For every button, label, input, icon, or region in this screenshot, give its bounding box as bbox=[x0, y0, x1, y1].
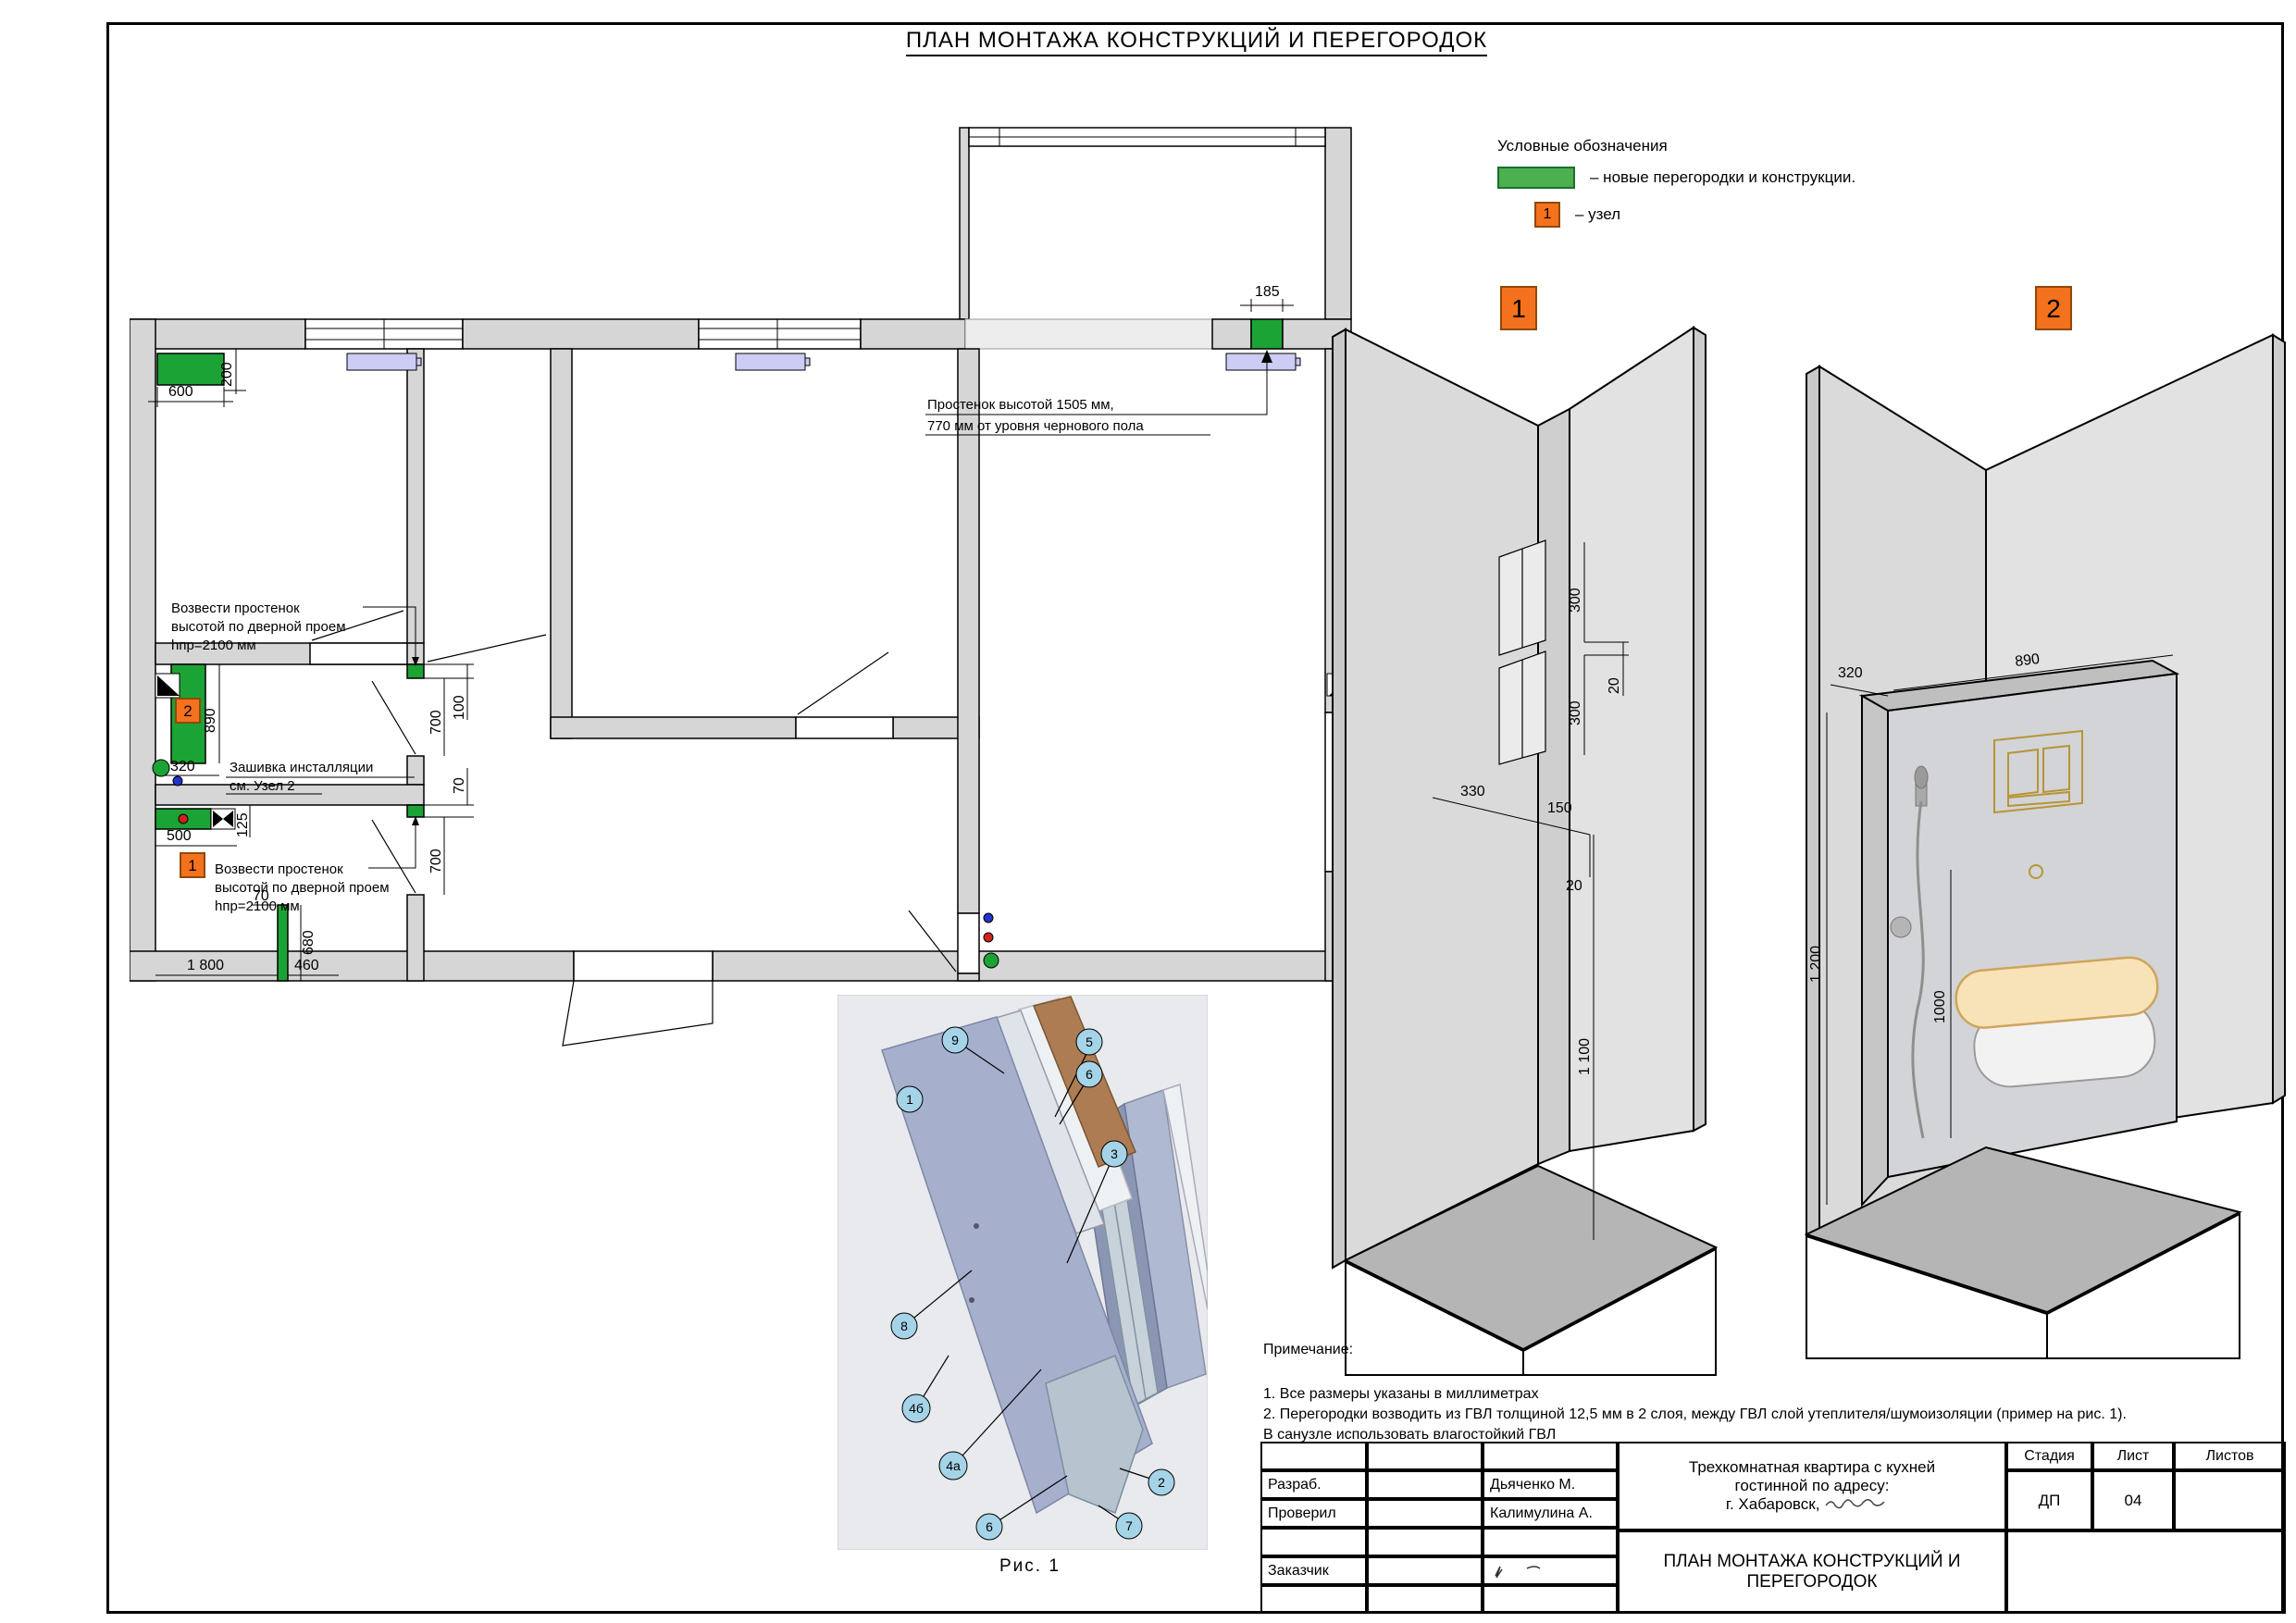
checked-label: Проверил bbox=[1260, 1499, 1367, 1528]
svg-text:3: 3 bbox=[1111, 1146, 1118, 1161]
svg-text:см. Узел 2: см. Узел 2 bbox=[230, 778, 295, 794]
sheet-header: Лист bbox=[2092, 1442, 2174, 1470]
svg-text:Зашивка инсталляции: Зашивка инсталляции bbox=[230, 760, 373, 775]
svg-text:Простенок высотой 1505 мм,: Простенок высотой 1505 мм, bbox=[927, 397, 1114, 413]
svg-text:500: 500 bbox=[167, 828, 192, 844]
svg-text:2: 2 bbox=[183, 702, 192, 720]
stage-value: ДП bbox=[2006, 1470, 2092, 1530]
title-block: Разраб. Дьяченко М. Проверил Калимулина … bbox=[1260, 1442, 2286, 1614]
svg-text:2: 2 bbox=[2046, 294, 2061, 323]
svg-text:125: 125 bbox=[235, 812, 251, 837]
svg-text:300: 300 bbox=[1568, 588, 1583, 613]
svg-text:890: 890 bbox=[203, 708, 218, 733]
legend-node-label: – узел bbox=[1575, 205, 1620, 224]
sheets-header: Листов bbox=[2174, 1442, 2286, 1470]
note-line: 1. Все размеры указаны в миллиметрах bbox=[1263, 1384, 2277, 1405]
svg-text:высотой по дверной проем: высотой по дверной проем bbox=[215, 880, 390, 896]
svg-text:330: 330 bbox=[1460, 784, 1485, 799]
svg-text:1: 1 bbox=[1511, 294, 1526, 323]
project-address: г. Хабаровск, bbox=[1726, 1495, 1898, 1514]
svg-text:2: 2 bbox=[1158, 1475, 1165, 1490]
svg-text:320: 320 bbox=[1838, 665, 1863, 681]
sheets-value bbox=[2174, 1470, 2286, 1530]
svg-text:70: 70 bbox=[452, 777, 467, 794]
svg-text:770 мм от уровня чернового пол: 770 мм от уровня чернового пола bbox=[927, 418, 1144, 434]
svg-text:460: 460 bbox=[294, 958, 319, 973]
legend-title: Условные обозначения bbox=[1497, 137, 2053, 155]
sheet-value: 04 bbox=[2092, 1470, 2174, 1530]
svg-text:20: 20 bbox=[1566, 878, 1582, 894]
legend: Условные обозначения – новые перегородки… bbox=[1497, 137, 2053, 241]
valve-icon bbox=[211, 809, 235, 829]
svg-text:9: 9 bbox=[951, 1033, 959, 1047]
new-pier-185 bbox=[1251, 319, 1283, 349]
svg-text:200: 200 bbox=[219, 362, 235, 387]
node-view-1: 1 300 300 20 330 150 20 1 100 bbox=[1323, 278, 1731, 1379]
svg-text:Возвести простенок: Возвести простенок bbox=[215, 861, 343, 877]
notes: Примечание: 1. Все размеры указаны в мил… bbox=[1263, 1340, 2277, 1445]
svg-text:680: 680 bbox=[301, 930, 316, 955]
svg-text:890: 890 bbox=[2014, 651, 2041, 670]
legend-new-walls-label: – новые перегородки и конструкции. bbox=[1590, 168, 1855, 187]
new-wall-680 bbox=[278, 905, 288, 981]
node-marker-icon: 1 bbox=[1534, 202, 1560, 228]
node-view-2-label: 2 bbox=[2036, 287, 2071, 329]
node-marker-1: 1 bbox=[180, 853, 205, 877]
svg-text:7: 7 bbox=[1125, 1518, 1133, 1533]
svg-text:600: 600 bbox=[168, 384, 193, 400]
signature-scribble bbox=[1490, 1561, 1573, 1581]
svg-text:150: 150 bbox=[1547, 800, 1572, 816]
dimension-lines bbox=[148, 299, 1294, 981]
stage-header: Стадия bbox=[2006, 1442, 2092, 1470]
svg-text:5: 5 bbox=[1086, 1035, 1093, 1049]
floor-plan: 2 1 600 200 bbox=[130, 120, 1360, 1055]
svg-text:hпр=2100 мм: hпр=2100 мм bbox=[171, 638, 256, 653]
checked-name: Калимулина А. bbox=[1483, 1499, 1618, 1528]
svg-text:700: 700 bbox=[428, 849, 444, 873]
client-signature bbox=[1483, 1556, 1618, 1585]
svg-text:185: 185 bbox=[1255, 284, 1280, 300]
svg-text:4а: 4а bbox=[946, 1458, 961, 1473]
svg-text:8: 8 bbox=[900, 1319, 908, 1333]
svg-text:высотой по дверной проем: высотой по дверной проем bbox=[171, 619, 346, 635]
svg-text:1 100: 1 100 bbox=[1577, 1038, 1593, 1075]
doc-title-cell: ПЛАН МОНТАЖА КОНСТРУКЦИЙ И ПЕРЕГОРОДОК bbox=[1618, 1530, 2006, 1614]
new-wall-swatch-icon bbox=[1497, 167, 1575, 189]
project-title: Трехкомнатная квартира с кухней гостинно… bbox=[1618, 1442, 2006, 1530]
svg-text:1: 1 bbox=[906, 1092, 913, 1107]
developed-name: Дьяченко М. bbox=[1483, 1470, 1618, 1499]
node-marker-2: 2 bbox=[176, 699, 200, 723]
svg-text:20: 20 bbox=[1607, 677, 1622, 694]
notes-title: Примечание: bbox=[1263, 1340, 2277, 1360]
client-label: Заказчик bbox=[1260, 1556, 1367, 1585]
figure-caption: Рис. 1 bbox=[999, 1556, 1231, 1577]
new-wall-600 bbox=[157, 353, 224, 385]
developed-label: Разраб. bbox=[1260, 1470, 1367, 1499]
svg-text:320: 320 bbox=[170, 759, 195, 774]
svg-text:6: 6 bbox=[986, 1519, 993, 1534]
svg-text:6: 6 bbox=[1086, 1067, 1093, 1082]
svg-text:700: 700 bbox=[428, 710, 444, 735]
svg-text:4б: 4б bbox=[909, 1401, 924, 1416]
svg-text:100: 100 bbox=[452, 695, 467, 720]
node-view-2: 2 890 320 1 200 1000 bbox=[1805, 278, 2296, 1360]
svg-text:Возвести простенок: Возвести простенок bbox=[171, 601, 300, 616]
svg-text:1 800: 1 800 bbox=[187, 958, 224, 973]
wall-corner-3d bbox=[1333, 328, 1716, 1375]
note-line: 2. Перегородки возводить из ГВЛ толщиной… bbox=[1263, 1405, 2277, 1425]
partition-detail-figure: 9 5 6 1 3 8 4б 4а 6 2 7 bbox=[838, 995, 1208, 1550]
node-view-1-label: 1 bbox=[1501, 287, 1536, 329]
svg-text:1: 1 bbox=[188, 857, 196, 874]
svg-text:1000: 1000 bbox=[1932, 990, 1948, 1023]
svg-text:1 200: 1 200 bbox=[1808, 946, 1824, 983]
radiators bbox=[347, 353, 1300, 370]
page-title: ПЛАН МОНТАЖА КОНСТРУКЦИЙ И ПЕРЕГОРОДОК bbox=[106, 28, 2287, 54]
svg-text:hпр=2100 мм: hпр=2100 мм bbox=[215, 898, 300, 914]
wall-hung-toilet bbox=[1954, 955, 2165, 1091]
vent-triangle-icon bbox=[155, 674, 1349, 698]
address-scribble bbox=[1824, 1496, 1898, 1509]
svg-text:300: 300 bbox=[1568, 700, 1583, 725]
